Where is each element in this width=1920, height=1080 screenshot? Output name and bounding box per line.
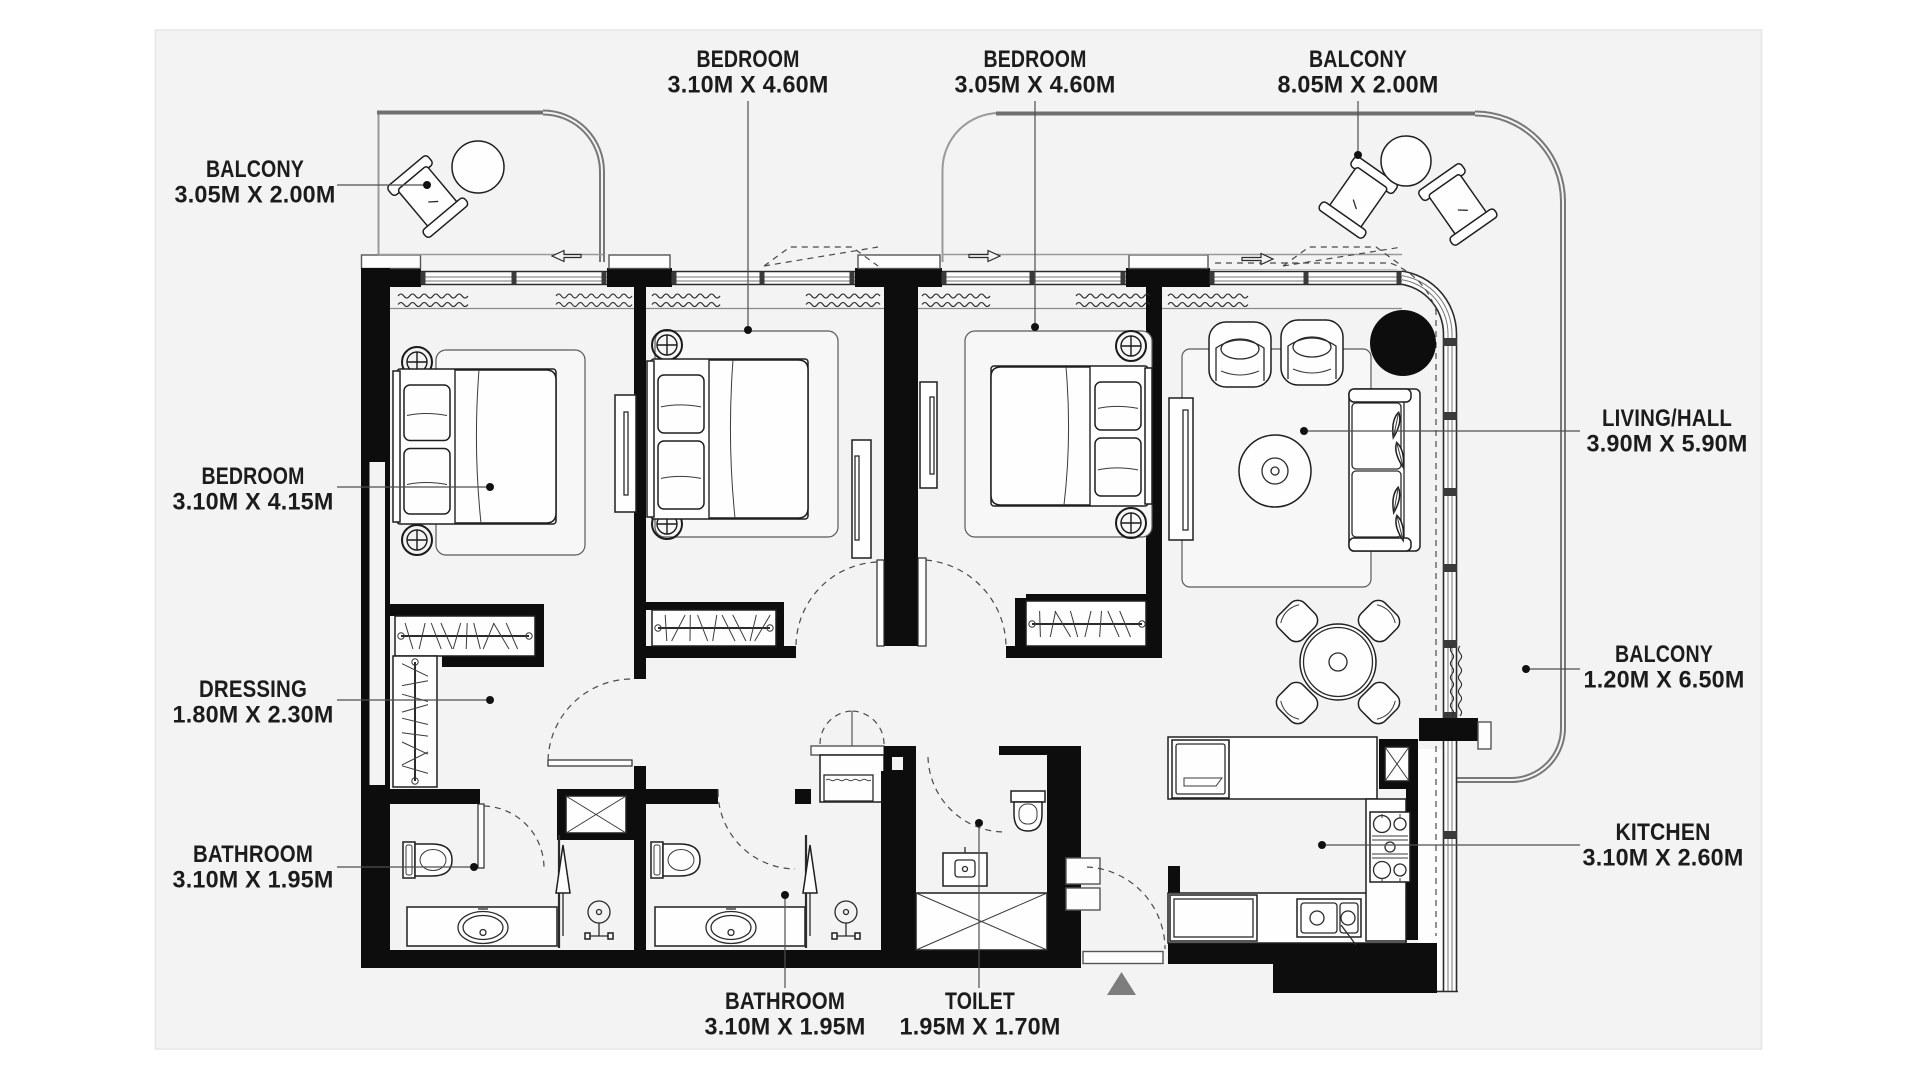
svg-text:BATHROOM: BATHROOM — [725, 988, 845, 1015]
svg-text:KITCHEN: KITCHEN — [1616, 819, 1711, 846]
svg-text:3.90M X 5.90M: 3.90M X 5.90M — [1587, 431, 1748, 458]
svg-text:LIVING/HALL: LIVING/HALL — [1602, 405, 1732, 432]
svg-text:3.10M X 2.60M: 3.10M X 2.60M — [1583, 845, 1744, 872]
svg-text:BATHROOM: BATHROOM — [193, 841, 313, 868]
svg-text:3.10M X 1.95M: 3.10M X 1.95M — [705, 1014, 866, 1041]
svg-text:3.05M X 2.00M: 3.05M X 2.00M — [175, 182, 336, 209]
svg-text:8.05M X 2.00M: 8.05M X 2.00M — [1278, 72, 1439, 99]
svg-text:3.10M X 1.95M: 3.10M X 1.95M — [173, 867, 334, 894]
svg-text:BALCONY: BALCONY — [1615, 641, 1713, 668]
svg-text:3.10M X 4.15M: 3.10M X 4.15M — [173, 489, 334, 516]
svg-text:TOILET: TOILET — [945, 988, 1015, 1015]
svg-text:3.05M X 4.60M: 3.05M X 4.60M — [955, 72, 1116, 99]
svg-text:BEDROOM: BEDROOM — [697, 46, 800, 73]
svg-text:3.10M X 4.60M: 3.10M X 4.60M — [668, 72, 829, 99]
svg-text:1.95M X 1.70M: 1.95M X 1.70M — [900, 1014, 1061, 1041]
svg-text:BEDROOM: BEDROOM — [984, 46, 1087, 73]
svg-text:BALCONY: BALCONY — [206, 156, 304, 183]
svg-text:1.80M X 2.30M: 1.80M X 2.30M — [173, 702, 334, 729]
svg-text:BEDROOM: BEDROOM — [202, 463, 305, 490]
svg-text:BALCONY: BALCONY — [1309, 46, 1407, 73]
svg-text:1.20M X 6.50M: 1.20M X 6.50M — [1584, 667, 1745, 694]
svg-text:DRESSING: DRESSING — [199, 676, 307, 703]
